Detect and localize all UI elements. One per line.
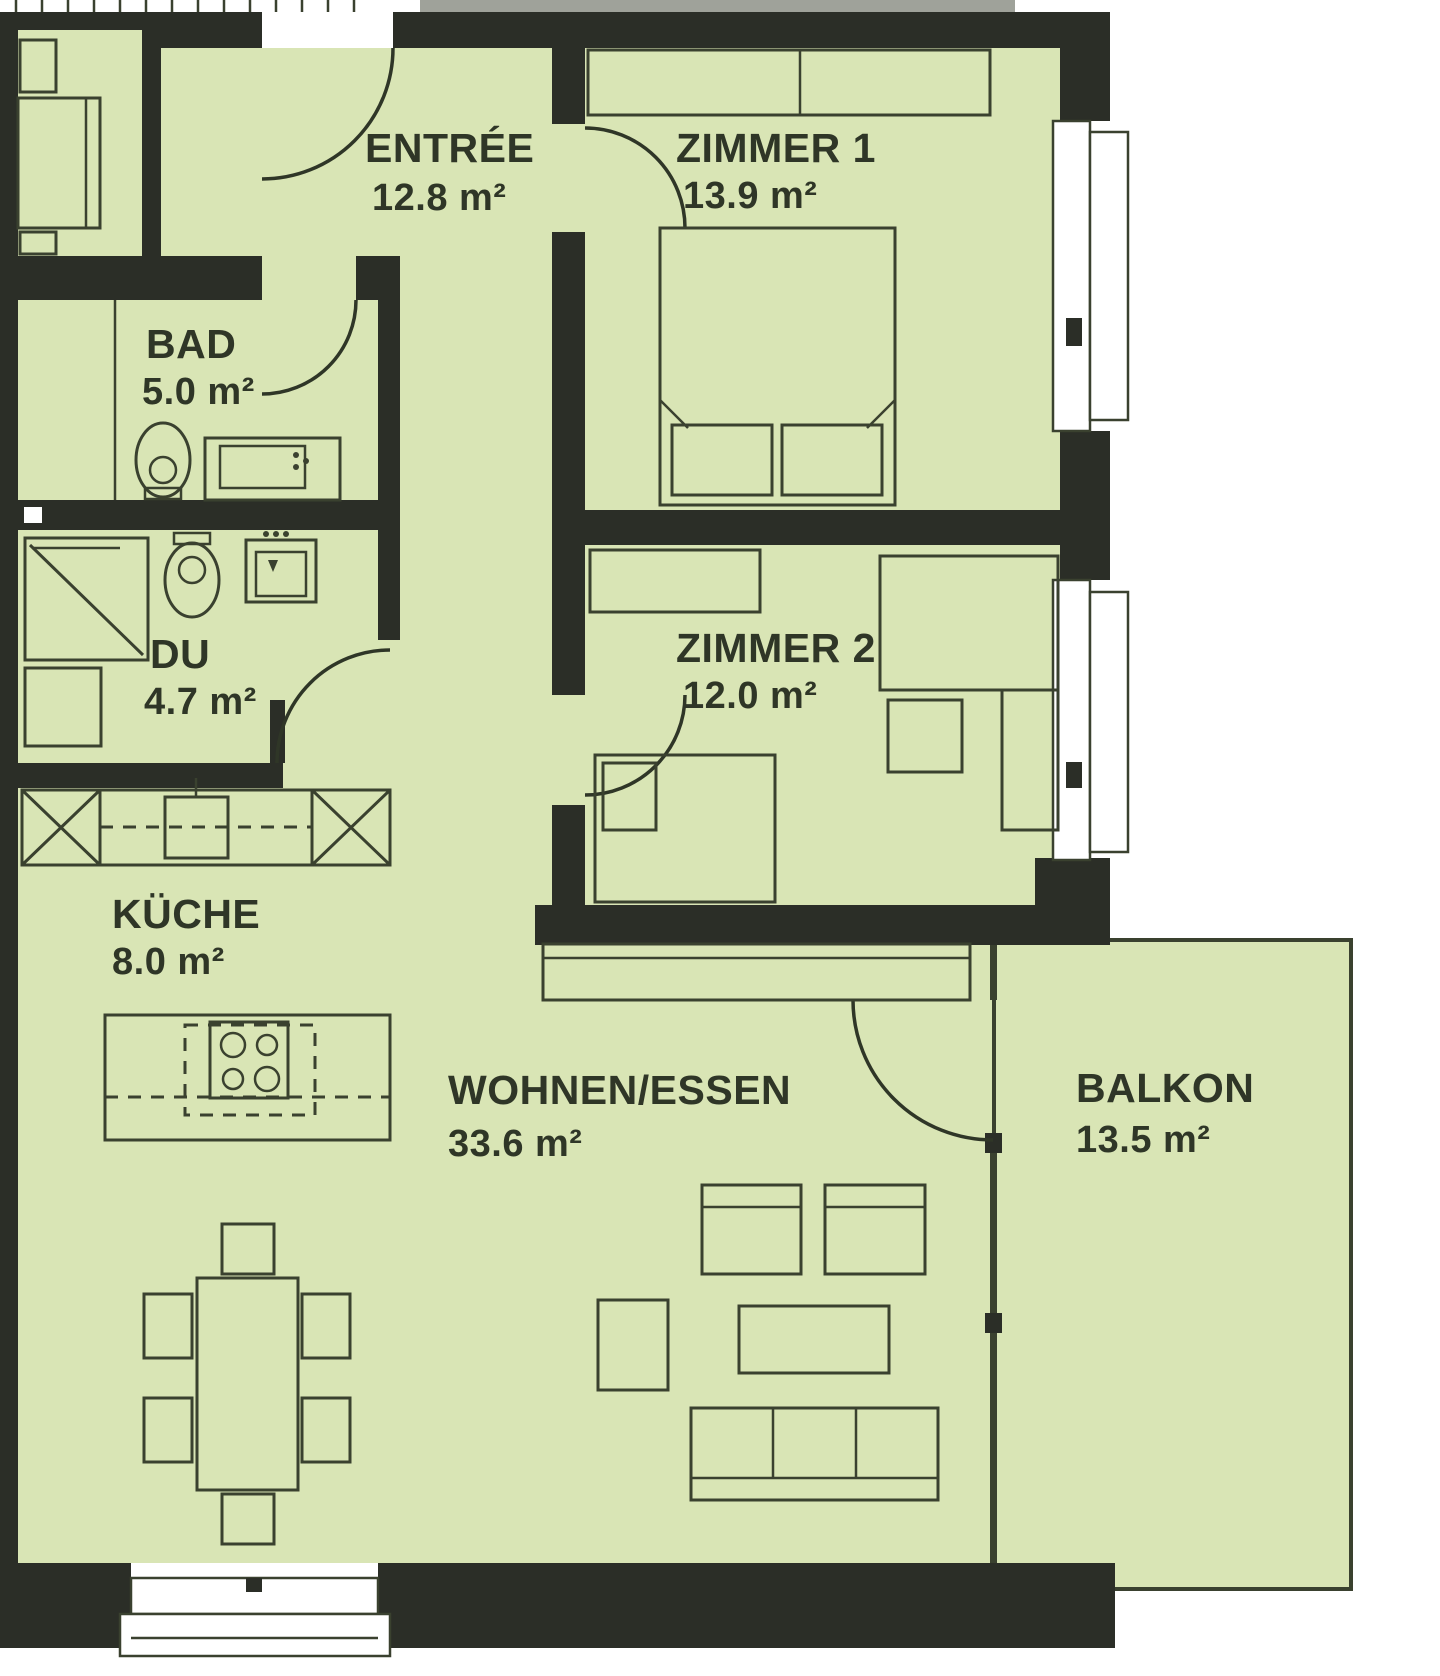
room-label-kueche: KÜCHE bbox=[112, 891, 260, 937]
duct-icon bbox=[16, 500, 50, 530]
room-label-du: DU bbox=[150, 631, 210, 677]
room-area-bad: 5.0 m² bbox=[142, 371, 255, 413]
balcony-region bbox=[994, 940, 1351, 1589]
window-zimmer1 bbox=[1053, 121, 1128, 431]
room-area-zimmer2: 12.0 m² bbox=[683, 675, 817, 717]
window-wohnen bbox=[120, 1578, 390, 1656]
room-label-wohnen: WOHNEN/ESSEN bbox=[448, 1067, 791, 1113]
adjacent-building-strip bbox=[420, 0, 1015, 14]
room-label-balkon: BALKON bbox=[1076, 1065, 1254, 1111]
room-label-entree: ENTRÉE bbox=[365, 125, 534, 171]
room-label-zimmer1: ZIMMER 1 bbox=[676, 125, 876, 171]
room-area-entree: 12.8 m² bbox=[372, 177, 506, 219]
floor-plan-page: ENTRÉE 12.8 m² ZIMMER 1 13.9 m² BAD 5.0 … bbox=[0, 0, 1440, 1676]
room-label-zimmer2: ZIMMER 2 bbox=[676, 625, 876, 671]
room-area-kueche: 8.0 m² bbox=[112, 941, 225, 983]
glass-wall-post-icon bbox=[985, 1133, 1002, 1153]
window-zimmer2 bbox=[1053, 580, 1128, 860]
room-area-du: 4.7 m² bbox=[144, 681, 257, 723]
room-label-bad: BAD bbox=[146, 321, 236, 367]
room-area-wohnen: 33.6 m² bbox=[448, 1123, 582, 1165]
room-area-balkon: 13.5 m² bbox=[1076, 1119, 1210, 1161]
balcony-slab bbox=[994, 940, 1351, 1589]
neighbor-bedroom-floor bbox=[18, 30, 142, 252]
floor-plan-svg: ENTRÉE 12.8 m² ZIMMER 1 13.9 m² BAD 5.0 … bbox=[0, 0, 1440, 1676]
room-area-zimmer1: 13.9 m² bbox=[683, 175, 817, 217]
glass-wall-post-icon bbox=[985, 1313, 1002, 1333]
wall-hatching-icon bbox=[16, 0, 354, 12]
